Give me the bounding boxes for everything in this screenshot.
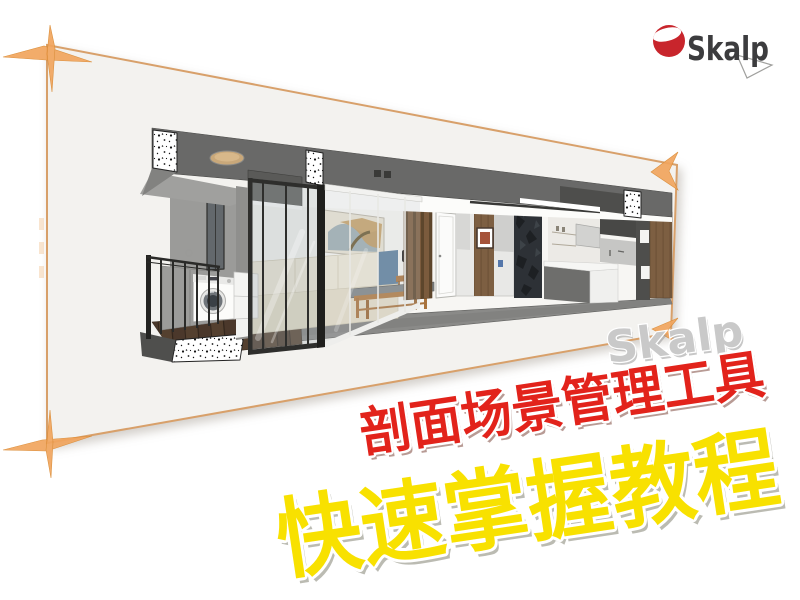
range-hood: [576, 224, 600, 248]
section-cut-left: [153, 130, 177, 172]
ceiling-vent: [374, 170, 381, 177]
kitchen-island: [544, 261, 618, 303]
washing-machine: [193, 274, 235, 322]
section-cut-right: [624, 190, 641, 218]
hallway-wardrobe: [456, 208, 514, 296]
tutorial-cover-poster: Skalp Skalp 剖面场景管理工具 剖面场景管理工具 快速掌握教程 快速掌…: [0, 0, 800, 600]
poster-canvas: Skalp Skalp 剖面场景管理工具 剖面场景管理工具 快速掌握教程 快速掌…: [0, 0, 800, 600]
logo-text: Skalp: [687, 29, 769, 68]
glass-corner-post: [317, 184, 325, 348]
kitchen-counter: [600, 238, 638, 266]
ceiling-vent-2: [384, 171, 391, 178]
skalp-sphere-icon: [651, 25, 685, 57]
section-cut-mid: [306, 150, 323, 186]
white-door: [436, 212, 456, 298]
skalp-logo: Skalp: [651, 25, 772, 78]
edge-tick-left: [39, 218, 44, 278]
